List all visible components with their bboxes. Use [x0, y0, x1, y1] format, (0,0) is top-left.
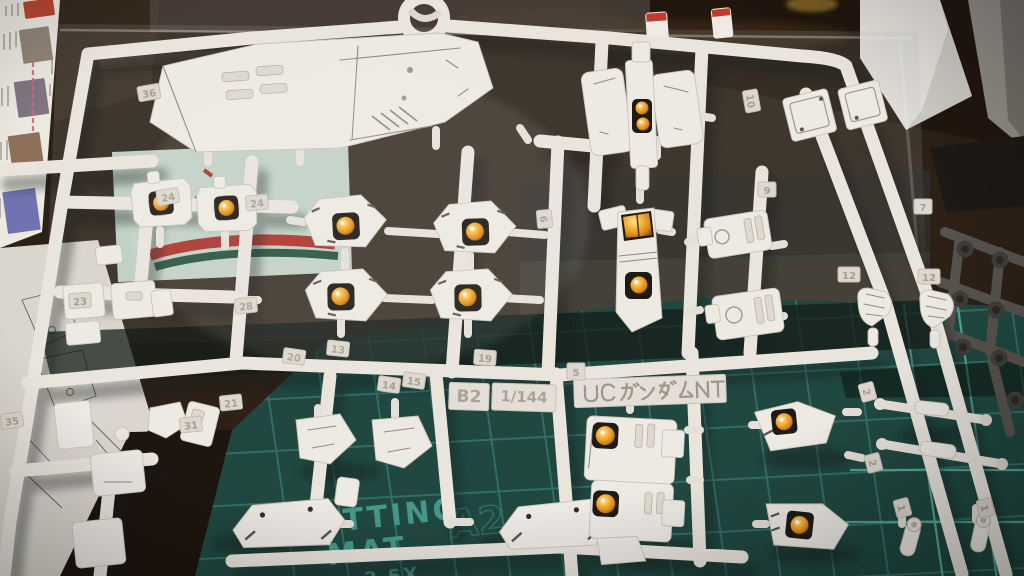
- photo-gunpla-runner: CUTTING MAT 2 5X A2: [0, 0, 1024, 576]
- lighting-overlays: [0, 0, 1024, 576]
